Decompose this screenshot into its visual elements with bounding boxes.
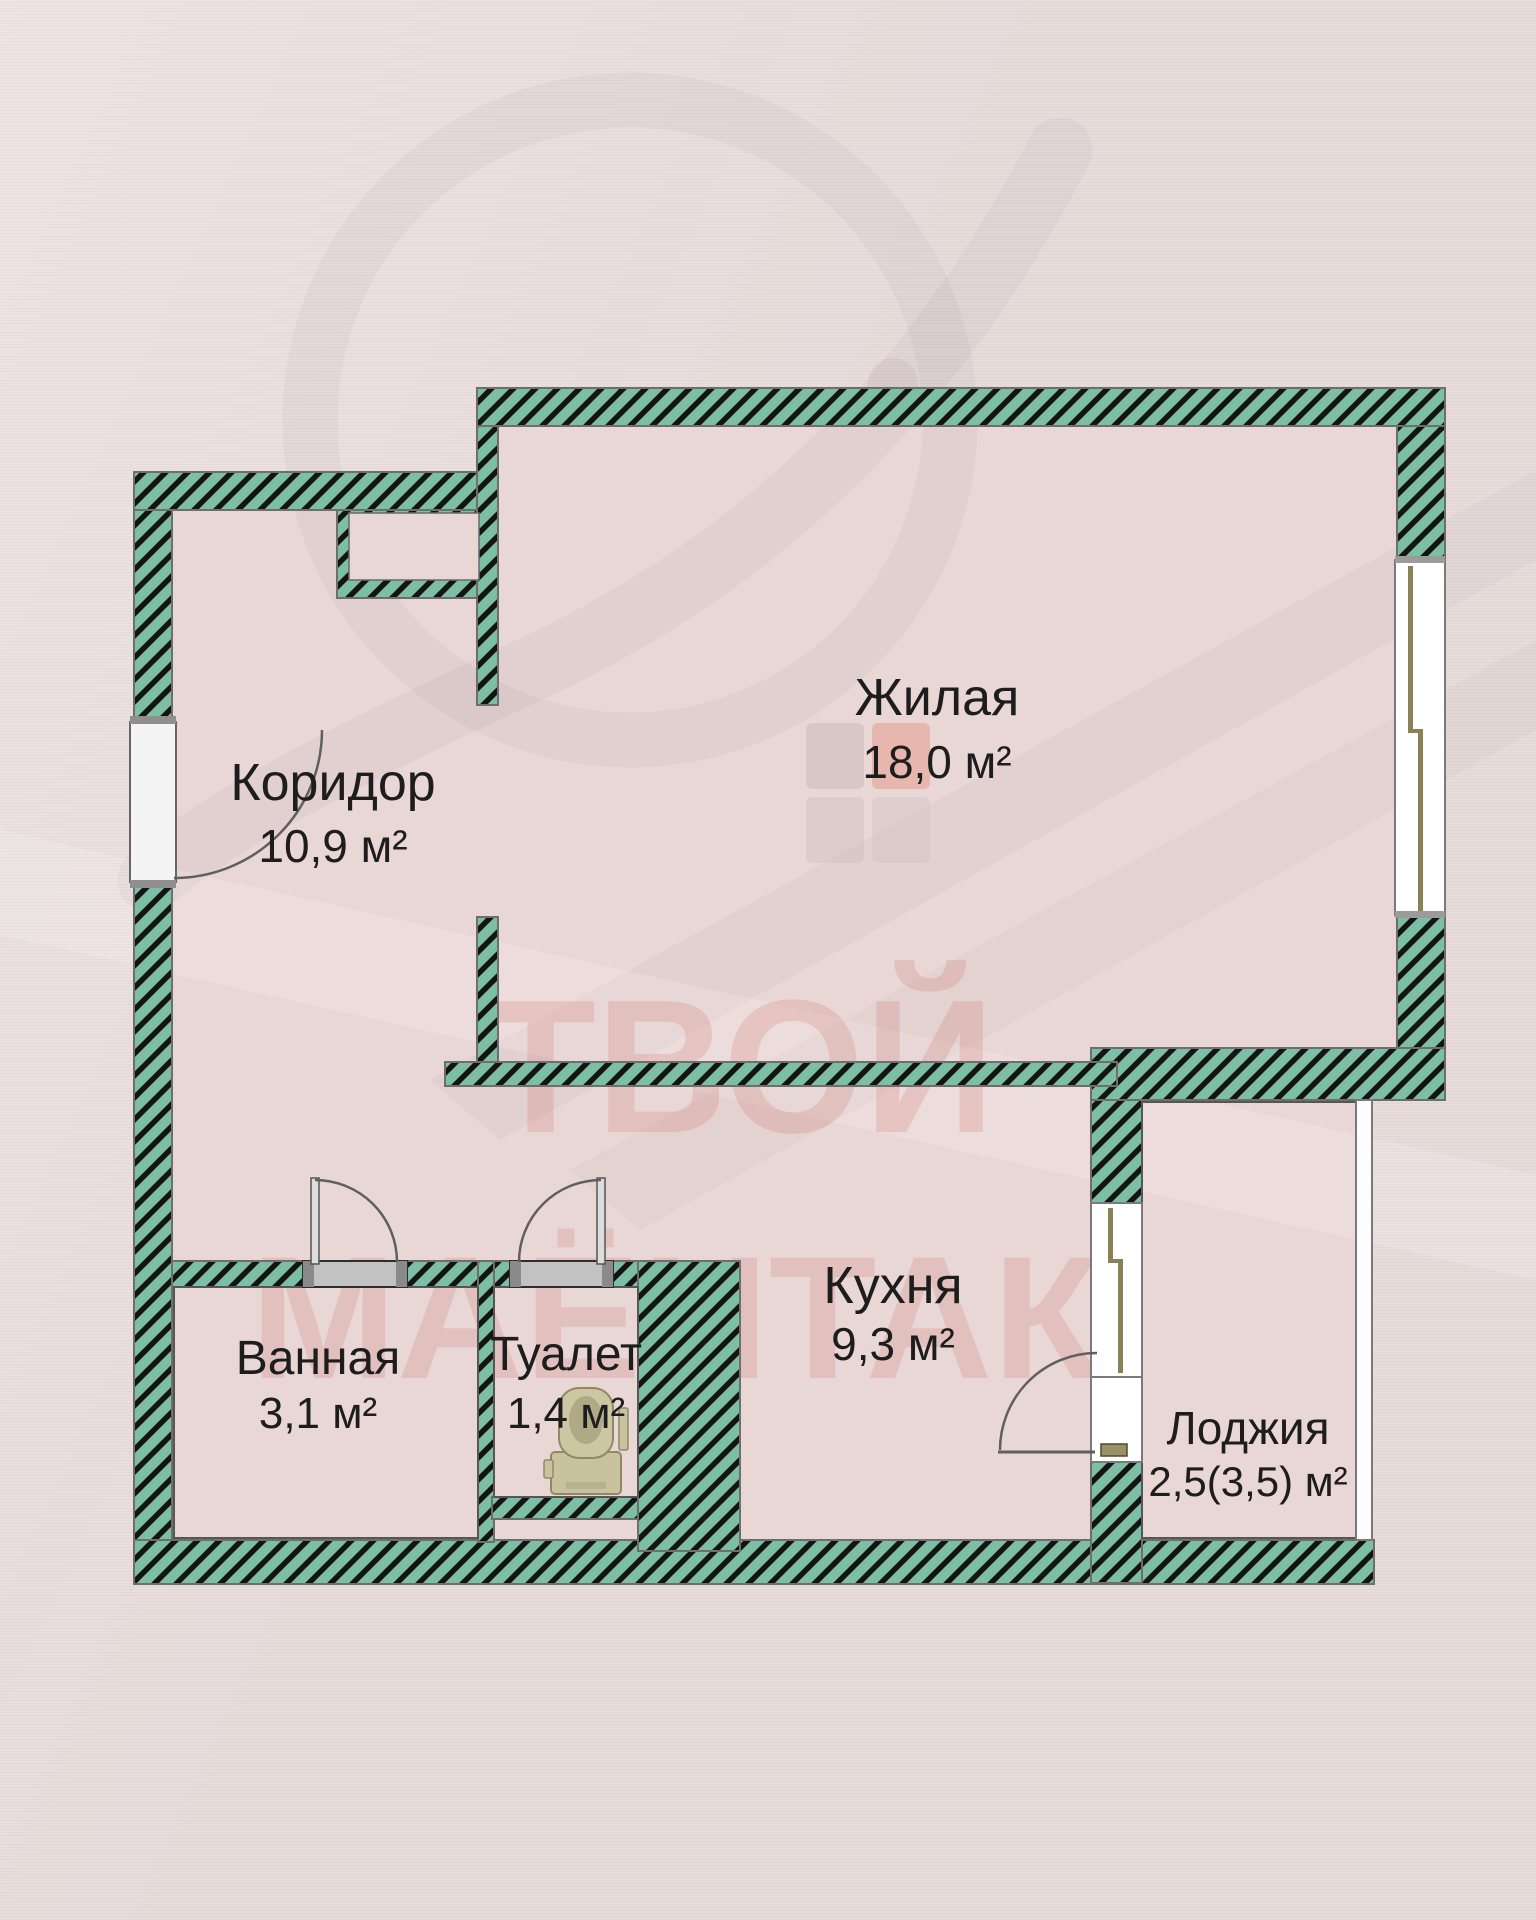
wall-living-left-upper — [477, 426, 498, 705]
wall-corridor-top — [134, 472, 497, 510]
wall-kitchen-loggia-lower — [1091, 1460, 1142, 1583]
room-area-toilet: 1,4 м² — [507, 1389, 625, 1438]
entrance-door-opening — [130, 722, 176, 882]
room-area-loggia: 2,5(3,5) м² — [1148, 1458, 1347, 1505]
wall-outer-right-upper — [1397, 426, 1445, 562]
room-area-corridor: 10,9 м² — [258, 820, 407, 872]
bathroom-door-leaf — [311, 1178, 319, 1264]
room-area-living: 18,0 м² — [862, 736, 1011, 788]
room-label-corridor: Коридор — [230, 754, 435, 812]
room-area-bathroom: 3,1 м² — [259, 1389, 377, 1438]
wall-outer-left — [134, 472, 172, 1583]
room-label-kitchen: Кухня — [823, 1257, 962, 1315]
room-label-loggia: Лоджия — [1167, 1402, 1330, 1454]
wall-living-bottom — [445, 1062, 1117, 1086]
toilet-door-threshold — [510, 1261, 613, 1287]
logo-square — [806, 797, 864, 863]
wall-living-left-lower — [477, 917, 498, 1064]
wall-toilet-duct — [492, 1497, 638, 1519]
logo-square — [806, 723, 864, 789]
living-room-window-icon — [1395, 556, 1445, 918]
loggia-glazing-icon — [1356, 1100, 1372, 1540]
kitchen-window-icon — [1091, 1203, 1142, 1377]
room-area-kitchen: 9,3 м² — [831, 1318, 955, 1370]
wall-toilet-kitchen — [638, 1261, 740, 1551]
wall-niche-opening — [349, 513, 479, 580]
wall-kitchen-loggia-upper — [1091, 1100, 1142, 1205]
room-label-bathroom: Ванная — [236, 1332, 400, 1385]
wall-outer-right-lower — [1397, 913, 1445, 1050]
wall-living-top — [477, 388, 1445, 426]
bathroom-door-threshold — [303, 1261, 407, 1287]
floor-plan: ТВОЙ МАЁНТАК — [0, 0, 1536, 1920]
balcony-door-sill — [1101, 1444, 1127, 1456]
toilet-door-leaf — [597, 1178, 605, 1264]
room-label-living: Жилая — [855, 669, 1019, 727]
wall-outer-bottom — [134, 1540, 1374, 1584]
wall-loggia-top — [1091, 1048, 1445, 1100]
logo-square — [872, 797, 930, 863]
room-label-toilet: Туалет — [490, 1328, 642, 1381]
